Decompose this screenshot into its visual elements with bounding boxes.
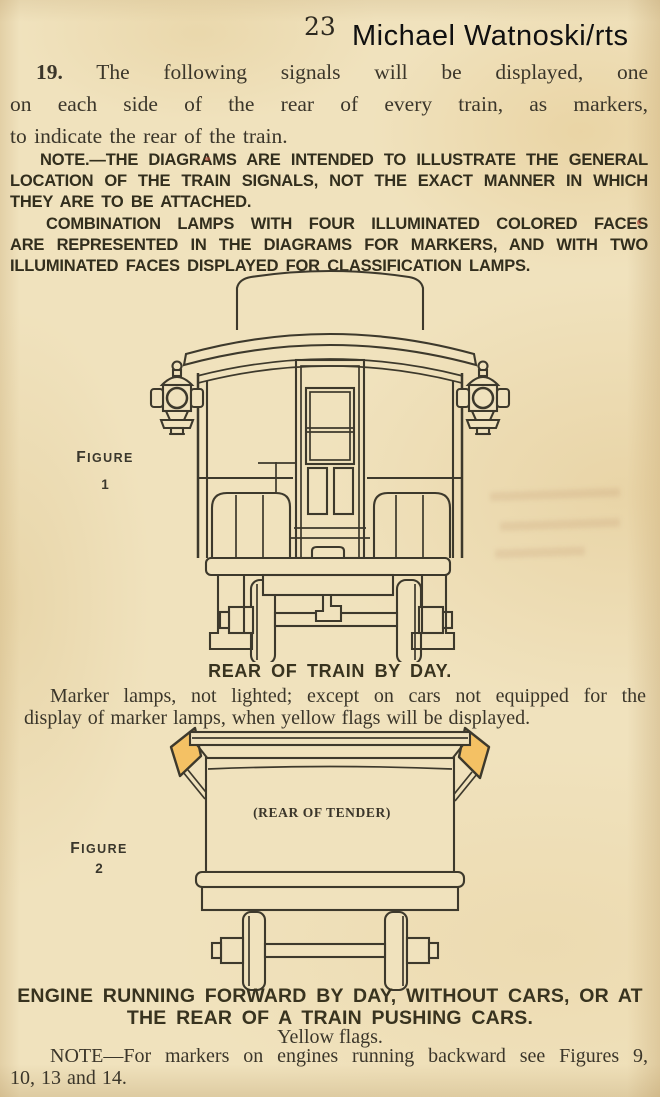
yellow-flag-left — [171, 728, 209, 799]
wheel-left — [251, 580, 275, 662]
car-roof — [184, 271, 476, 383]
red-ink-speck — [637, 220, 641, 225]
page-number: 23 — [304, 12, 336, 41]
scanned-rulebook-page: 23 Michael Watnoski/rts 19. The followin… — [0, 0, 660, 1097]
figure1-number: 1 — [70, 477, 140, 492]
figure1-caption: REAR OF TRAIN BY DAY. — [0, 661, 660, 682]
wheel-right — [385, 912, 407, 990]
car-undergear — [206, 547, 454, 662]
footnote-line-1: NOTE—For markers on engines running back… — [10, 1045, 648, 1068]
step-left — [210, 575, 252, 649]
figure1-label: FIGURE — [70, 449, 140, 467]
coupler — [316, 595, 341, 621]
tender-wheelset — [212, 912, 438, 990]
note-para2-line-1: COMBINATION LAMPS WITH FOUR ILLUMINATED … — [10, 215, 648, 234]
page-showthrough-smudge — [490, 488, 620, 502]
page-showthrough-smudge — [500, 518, 620, 531]
red-ink-speck — [205, 157, 210, 161]
figure2-caption-line-1: ENGINE RUNNING FORWARD BY DAY, WITHOUT C… — [0, 985, 660, 1008]
rule19-line-3: to indicate the rear of the train. — [10, 124, 648, 149]
step-right — [412, 575, 454, 649]
tender-label: (REAR OF TENDER) — [230, 805, 414, 821]
yellow-flag-right — [451, 728, 489, 801]
figure1-description-line-2: display of marker lamps, when yellow fla… — [10, 707, 648, 730]
note-para1-line-2: LOCATION OF THE TRAIN SIGNALS, NOT THE E… — [10, 172, 648, 191]
marker-lamp-right — [457, 362, 509, 435]
marker-lamp-left — [151, 362, 203, 435]
axle — [275, 613, 397, 626]
wheel-right — [397, 580, 421, 662]
tender-body — [190, 732, 470, 910]
rule19-line-1: 19. The following signals will be displa… — [10, 60, 648, 85]
watermark-text: Michael Watnoski/rts — [352, 20, 628, 53]
note-para2-line-3: ILLUMINATED FACES DISPLAYED FOR CLASSIFI… — [10, 257, 648, 276]
rule19-number: 19. — [36, 60, 63, 84]
page-showthrough-smudge — [495, 546, 585, 558]
axle — [265, 944, 385, 957]
figure2-number: 2 — [64, 861, 134, 876]
rule19-text-1: The following signals will be displayed,… — [96, 60, 648, 84]
car-body — [198, 360, 462, 558]
note-para1-line-3: THEY ARE TO BE ATTACHED. — [10, 193, 648, 212]
figure1-description-line-1: Marker lamps, not lighted; except on car… — [10, 685, 646, 708]
platform — [206, 558, 450, 575]
footnote-line-2: 10, 13 and 14. — [10, 1067, 648, 1090]
rule19-line-2: on each side of the rear of every train,… — [10, 92, 648, 117]
note-para2-line-2: ARE REPRESENTED IN THE DIAGRAMS FOR MARK… — [10, 236, 648, 255]
figure2-label: FIGURE — [64, 840, 134, 858]
wheel-left — [243, 912, 265, 990]
note-para1-line-1: NOTE.—THE DIAGRAMS ARE INTENDED TO ILLUS… — [10, 151, 648, 170]
